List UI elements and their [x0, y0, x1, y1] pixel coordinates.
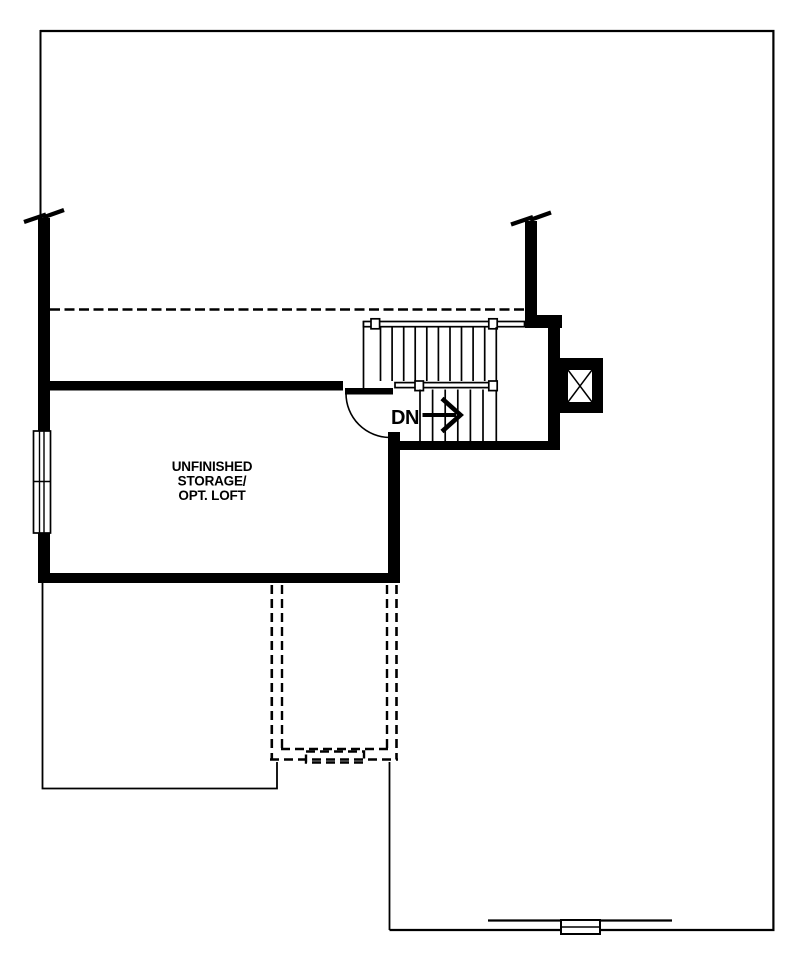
room-name-line3: OPT. LOFT	[178, 488, 246, 503]
stair-direction-label: DN	[391, 407, 419, 429]
outline-boundary	[40, 30, 775, 931]
lower-level-sill-detail	[488, 920, 672, 934]
door-swing-arc	[346, 394, 390, 438]
lower-left-roof-outline	[43, 583, 278, 789]
labels: UNFINISHED STORAGE/ OPT. LOFT DN	[172, 407, 419, 503]
door-leaf	[345, 388, 393, 395]
wall-break-marks	[24, 210, 551, 225]
stair-upper-treads	[381, 327, 485, 381]
floor-plan-sheet: UNFINISHED STORAGE/ OPT. LOFT DN	[0, 0, 800, 967]
window-symbol	[34, 431, 51, 533]
roof-outline-dashed-below	[270, 585, 398, 763]
door-symbol	[345, 388, 393, 438]
break-mark-right-icon	[530, 213, 551, 221]
room-name-line1: UNFINISHED	[172, 459, 253, 474]
stair-newel-post	[489, 381, 497, 391]
break-mark-left-icon	[43, 210, 64, 218]
room-name-line2: STORAGE/	[178, 474, 247, 489]
chimney-chase	[556, 358, 603, 413]
floor-plan-drawing: UNFINISHED STORAGE/ OPT. LOFT DN	[0, 0, 800, 967]
staircase	[364, 319, 525, 441]
dashed-step-detail	[306, 752, 364, 763]
wall-stair-upper-right	[525, 221, 537, 328]
wall-room-bottom	[38, 573, 400, 583]
stair-middle-rail	[395, 383, 497, 388]
stair-direction-arrow-icon	[423, 399, 461, 432]
wall-room-top	[38, 381, 343, 391]
stair-top-rail	[364, 322, 525, 327]
wall-stair-bottom	[388, 441, 560, 450]
wall-stair-jog	[525, 315, 562, 328]
stair-newel-post	[371, 319, 380, 329]
wall-room-right	[388, 432, 400, 583]
stair-newel-post	[415, 381, 423, 391]
